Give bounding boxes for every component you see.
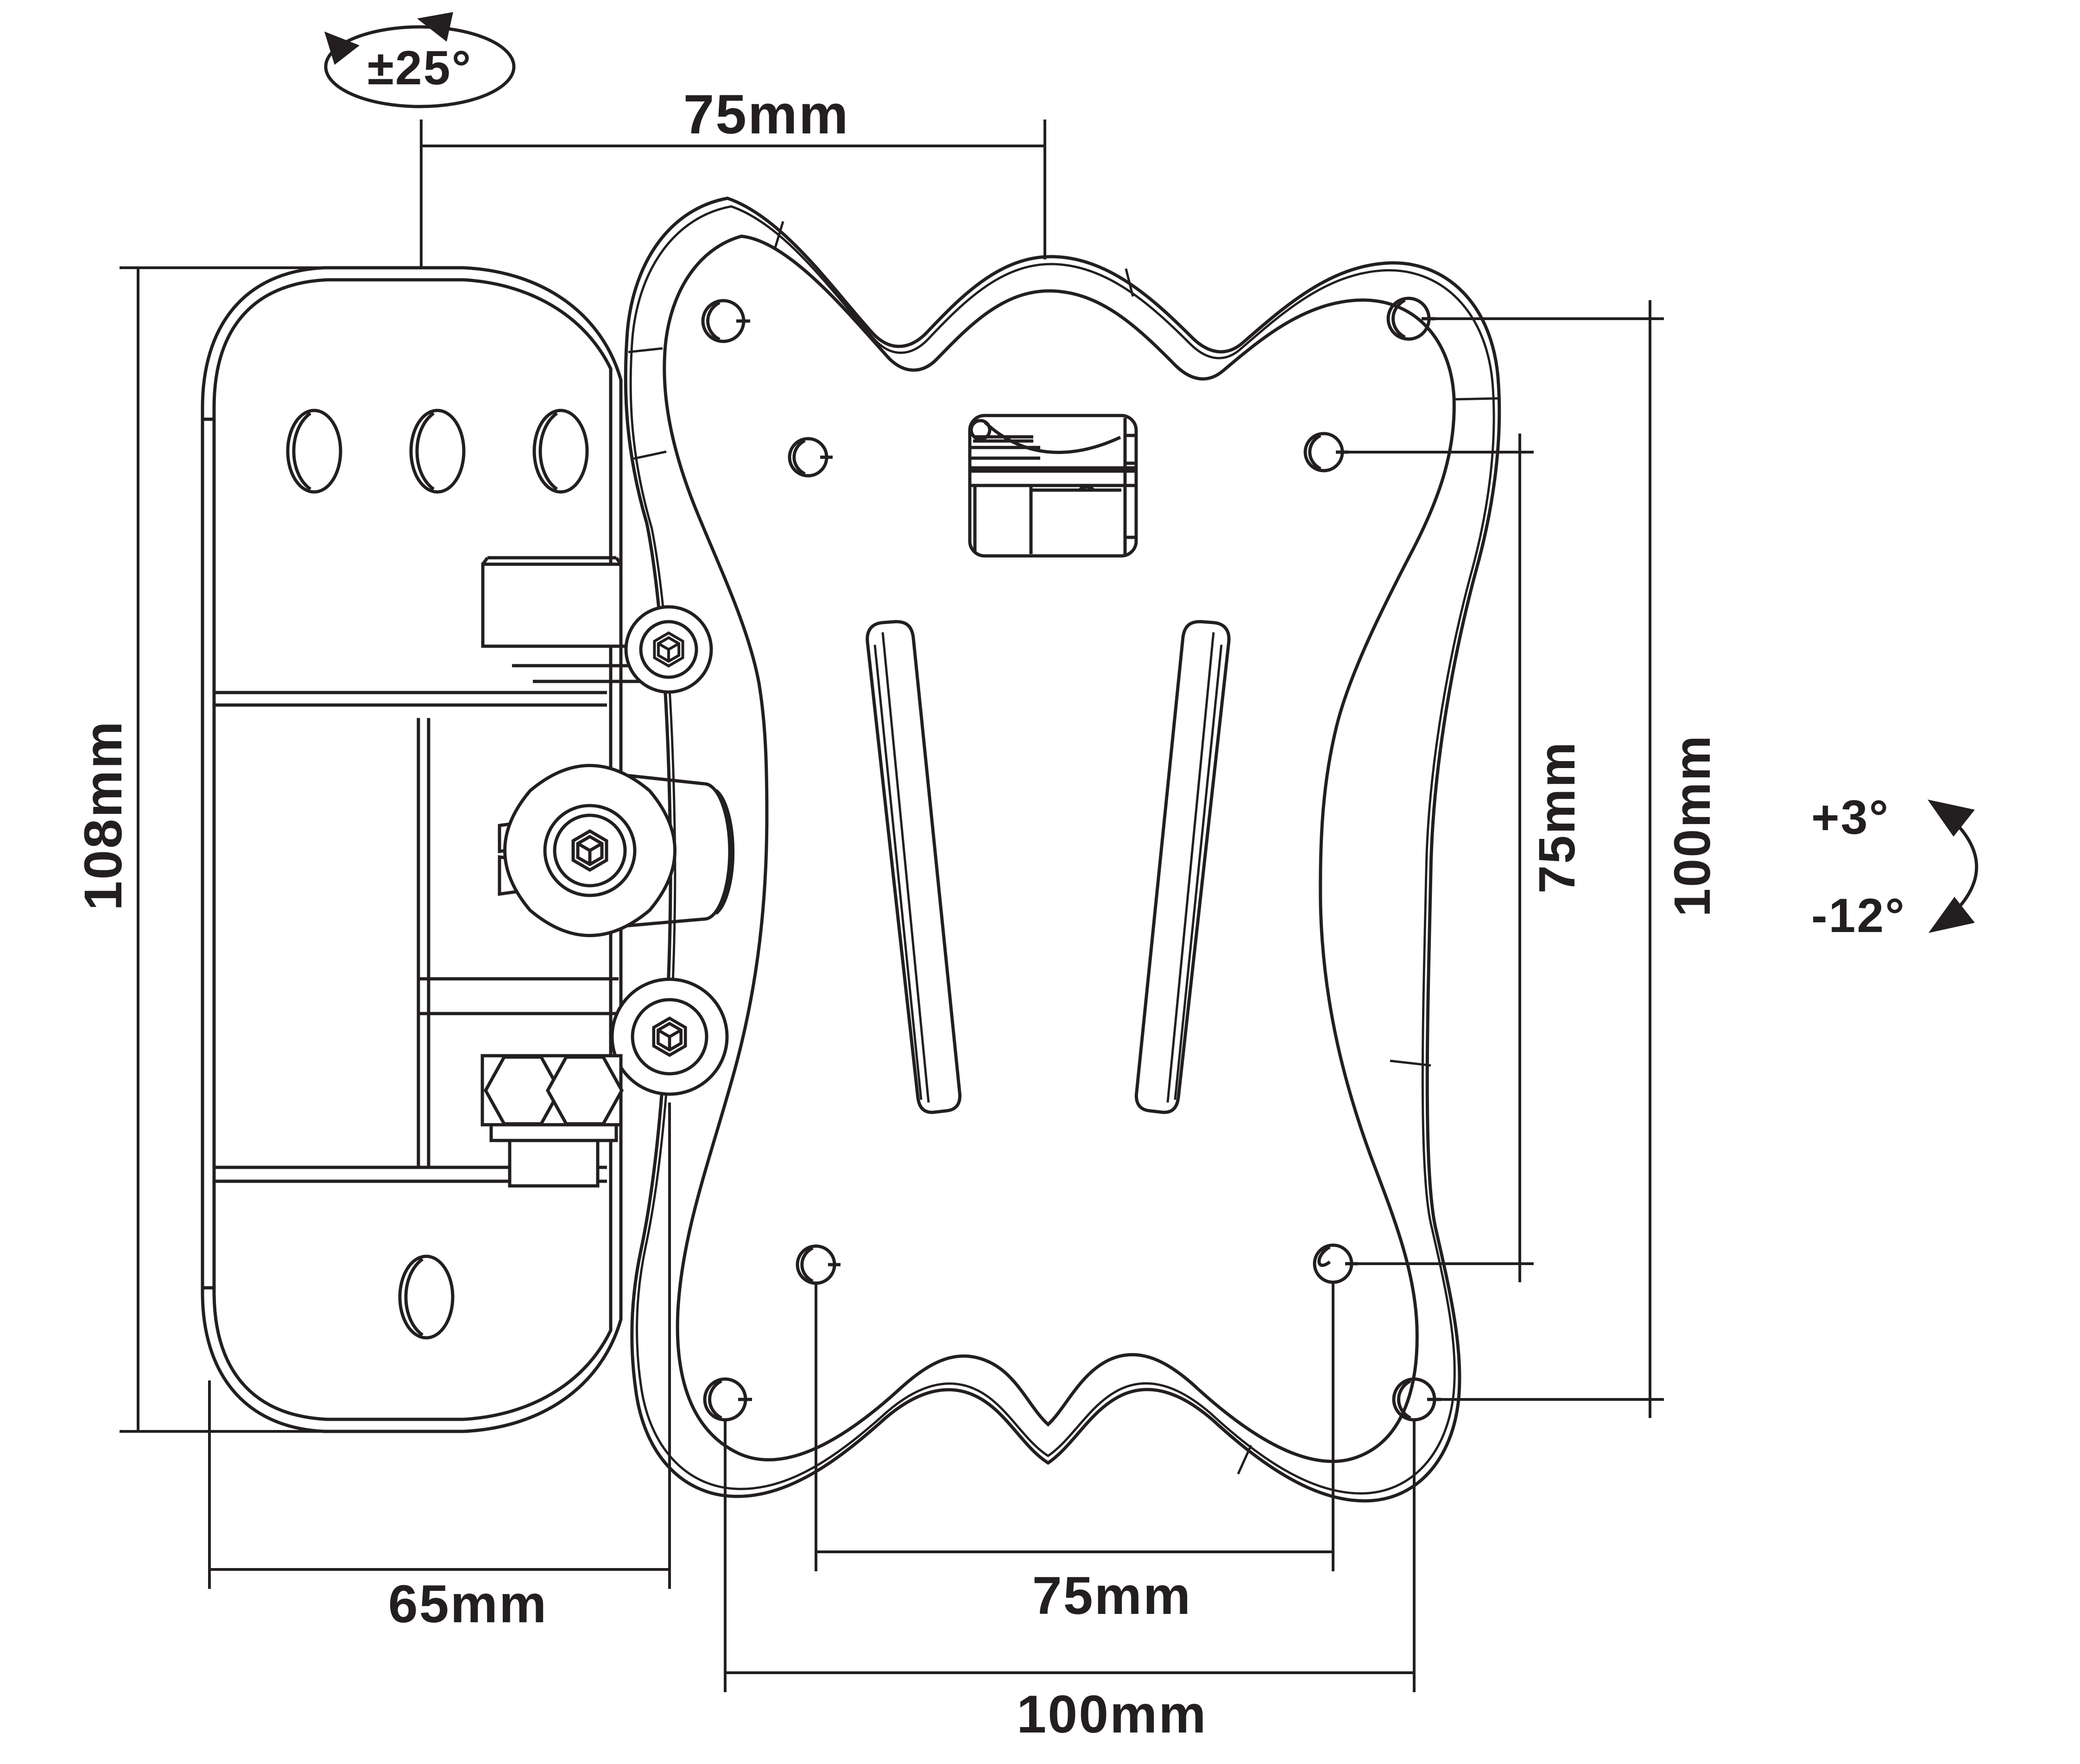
bracket-hole: [400, 1256, 453, 1338]
depth-label: 65mm: [388, 1575, 548, 1634]
vesa-plate-outline: [626, 198, 1499, 1501]
bottom-inner-width-label: 75mm: [1032, 1566, 1192, 1625]
top-width-label: 75mm: [683, 83, 850, 145]
drawing-layer: [202, 198, 1499, 1501]
stud-end: [510, 1140, 598, 1186]
right-inner-height-label: 75mm: [1529, 741, 1586, 894]
bracket-hole: [534, 410, 587, 492]
bracket-edge-ticks: [202, 419, 214, 1288]
right-outer-height-label: 100mm: [1664, 734, 1721, 917]
swivel-angle-label: ±25°: [367, 41, 472, 95]
bracket-hole: [288, 410, 341, 492]
bottom-outer-width-label: 100mm: [1017, 1685, 1207, 1744]
drawing-page: ±25° 75mm 108mm 65mm 75mm 100mm 75mm 100…: [0, 0, 2080, 1764]
hex-screw-top: [626, 607, 711, 692]
hex-screw-bottom: [612, 979, 727, 1094]
left-height-label: 108mm: [74, 720, 133, 910]
tilt-arrowhead-down-icon: [1928, 897, 1975, 933]
quick-release-latch: [970, 416, 1136, 556]
tilt-up-label: +3°: [1811, 791, 1890, 844]
vesa-plate: [626, 198, 1499, 1501]
bracket-fold-top: [215, 693, 607, 705]
bracket-fold-mid: [419, 979, 619, 1014]
bracket-hole: [411, 410, 464, 492]
washer: [491, 1125, 616, 1140]
tilt-arrow-icon: [1928, 800, 1977, 933]
tv-mount-technical-drawing: ±25° 75mm 108mm 65mm 75mm 100mm 75mm 100…: [0, 0, 2080, 1764]
clamp-boss: [483, 558, 621, 646]
dimension-left-height: [120, 268, 422, 1431]
bracket-channel: [418, 718, 429, 1167]
tilt-arrowhead-up-icon: [1928, 800, 1975, 837]
tilt-down-label: -12°: [1811, 889, 1906, 943]
